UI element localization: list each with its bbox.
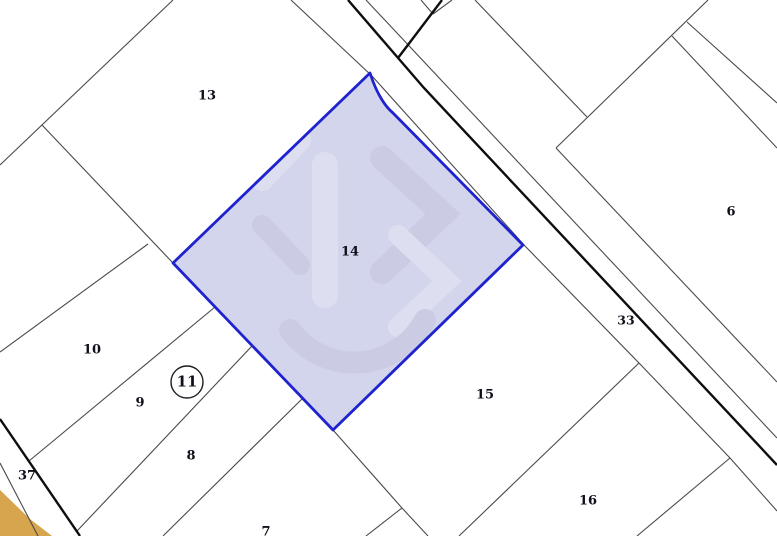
parcel-label-6: 6 xyxy=(726,205,735,220)
parcel-11-badge: 11 xyxy=(177,373,198,391)
parcel-label-10: 10 xyxy=(83,343,101,358)
parcel-label-37: 37 xyxy=(18,469,36,484)
parcel-label-14: 14 xyxy=(341,245,359,260)
parcel-label-33: 33 xyxy=(617,313,634,328)
map-viewport[interactable]: 13146331098377151611 xyxy=(0,0,777,536)
parcel-label-7: 7 xyxy=(261,525,270,536)
parcel-label-16: 16 xyxy=(579,494,597,509)
cadastral-map-canvas[interactable]: 13146331098377151611 xyxy=(0,0,777,536)
parcel-label-8: 8 xyxy=(186,449,195,464)
parcel-label-15: 15 xyxy=(476,388,494,403)
parcel-label-9: 9 xyxy=(135,396,144,411)
parcel-label-13: 13 xyxy=(198,89,216,104)
